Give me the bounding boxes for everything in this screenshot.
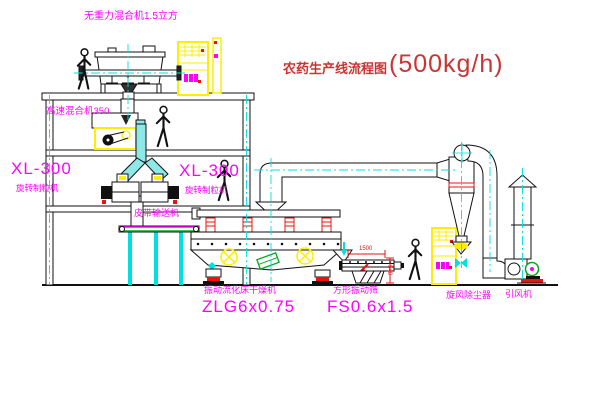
- label-screen-model: FS0.6x1.5: [327, 298, 414, 315]
- label-granulator-right-name: 旋转制粒机: [185, 186, 228, 195]
- label-gravity-mixer: 无重力混合机1.5立方: [84, 12, 178, 22]
- label-granulator-right-model: XL-300: [179, 162, 240, 179]
- label-dryer-name: 振动流化床干燥机: [204, 286, 276, 295]
- fluid-bed-dryer: [191, 208, 341, 284]
- label-high-speed-mixer: 高速混合机350: [46, 107, 109, 117]
- label-dryer-model: ZLG6x0.75: [202, 298, 295, 315]
- label-fan: 引风机: [505, 290, 532, 299]
- dim-screen-length: 1500: [359, 246, 372, 252]
- exhaust-duct: [256, 163, 437, 216]
- cad-process-flow-screenshot: 农药生产线流程图 (500kg/h) 无重力混合机1.5立方 高速混合机350 …: [0, 0, 600, 403]
- control-cabinet-top: [178, 38, 221, 95]
- label-cyclone: 旋风除尘器: [446, 291, 491, 300]
- rotary-granulators: [101, 174, 179, 227]
- control-cabinet-right: [432, 228, 456, 284]
- belt-conveyor: [119, 226, 201, 285]
- dim-screen-height: 540: [386, 265, 392, 275]
- person-ground: [409, 239, 421, 279]
- label-granulator-left-model: XL-300: [11, 160, 72, 177]
- label-belt-conveyor: 皮带输送机: [134, 209, 179, 218]
- person-second-floor: [157, 106, 169, 146]
- drawing-title: 农药生产线流程图 (500kg/h): [283, 50, 504, 79]
- label-granulator-left-name: 旋转制粒机: [16, 184, 59, 193]
- induced-draft-fan: [505, 175, 546, 283]
- title-capacity: (500kg/h): [389, 50, 504, 79]
- label-screen-name: 方形振动筛: [333, 286, 378, 295]
- title-chinese: 农药生产线流程图: [283, 58, 387, 77]
